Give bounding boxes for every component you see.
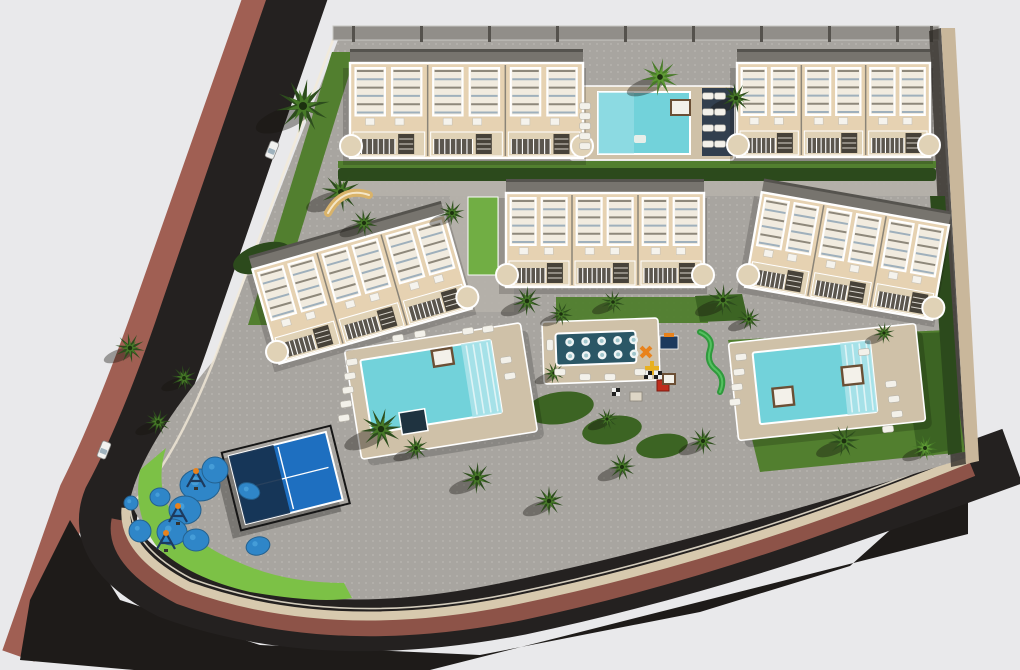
sun-lounger: [504, 372, 516, 380]
sun-lounger: [731, 383, 743, 391]
site-plan-render: [0, 0, 1020, 670]
palm-crown: [721, 298, 726, 303]
sun-lounger: [729, 398, 741, 406]
skylight: [443, 118, 452, 125]
palm-crown: [842, 439, 847, 444]
rooftop-pergola: [511, 198, 536, 245]
wall-post: [352, 26, 355, 42]
skylight: [879, 118, 888, 125]
skylight: [544, 248, 553, 255]
rooftop-pergola: [643, 198, 668, 245]
rooftop-pergola: [542, 198, 567, 245]
jet-pool: [555, 331, 636, 366]
building-block-b: [727, 49, 940, 164]
building-block-c: [496, 179, 714, 294]
skylight: [849, 264, 859, 272]
game-mat: [612, 392, 616, 396]
sun-lounger: [703, 93, 714, 100]
hot-tub: [399, 409, 428, 435]
skylight: [610, 248, 619, 255]
rooftop-pergola: [836, 68, 860, 115]
skylight: [585, 248, 594, 255]
skylight: [774, 118, 783, 125]
palm-crown: [156, 420, 160, 424]
aerial-render-canvas: [0, 0, 1020, 670]
wall-post: [624, 26, 627, 42]
skylight: [395, 118, 404, 125]
checker-chair: [658, 375, 662, 379]
skylight: [651, 248, 660, 255]
skylight: [888, 271, 898, 279]
palm-crown: [362, 221, 366, 225]
grass-patch: [468, 197, 498, 275]
palm-crown: [414, 446, 418, 450]
sun-lounger: [733, 368, 745, 376]
spa-table: [663, 374, 675, 384]
sun-lounger: [882, 425, 894, 433]
sun-lounger: [885, 380, 897, 388]
palm-crown: [701, 439, 705, 443]
rooftop-pergola: [900, 68, 924, 115]
curved-balcony: [727, 134, 749, 156]
pool-daybed: [671, 100, 690, 115]
palm-crown: [475, 476, 480, 481]
sun-lounger: [482, 325, 494, 333]
rooftop-pergola: [806, 68, 830, 115]
boundary-wall-top: [333, 26, 939, 42]
sun-lounger: [462, 327, 474, 335]
wall-post: [488, 26, 491, 42]
palm-crown: [657, 74, 663, 80]
wall-post: [420, 26, 423, 42]
skylight: [787, 253, 797, 261]
palm-crown: [547, 499, 552, 504]
curved-balcony: [496, 264, 518, 286]
wall-post: [760, 26, 763, 42]
play-pad: [150, 488, 170, 506]
sun-lounger: [715, 125, 726, 132]
sun-lounger: [715, 109, 726, 116]
sun-lounger: [605, 374, 616, 381]
palm-crown: [747, 317, 751, 321]
sun-lounger: [715, 93, 726, 100]
curved-balcony: [340, 135, 362, 157]
rooftop-pergola: [433, 68, 463, 116]
palm-crown: [299, 102, 307, 110]
checker-chair: [648, 371, 652, 375]
sun-lounger: [580, 374, 591, 381]
rooftop-pergola: [470, 68, 500, 116]
game-mat: [616, 392, 620, 396]
rooftop-pergola: [772, 68, 796, 115]
palm-crown: [923, 446, 927, 450]
play-house: [660, 336, 678, 349]
sun-lounger: [580, 113, 591, 120]
sun-lounger: [340, 400, 352, 408]
skylight: [750, 118, 759, 125]
skylight: [903, 118, 912, 125]
rooftop-pergola: [392, 68, 422, 116]
sun-lounger: [344, 372, 356, 380]
sun-lounger: [888, 395, 900, 403]
wall-post: [556, 26, 559, 42]
palm-crown: [620, 465, 624, 469]
sun-lounger: [715, 141, 726, 148]
palm-crown: [378, 426, 384, 432]
checker-chair: [654, 371, 658, 375]
curved-balcony: [918, 134, 940, 156]
daybed: [842, 365, 864, 385]
wall-post: [692, 26, 695, 42]
sun-lounger: [555, 369, 566, 376]
checker-chair: [654, 375, 658, 379]
sun-lounger: [635, 369, 646, 376]
sun-lounger: [580, 133, 591, 140]
game-mat: [616, 388, 620, 392]
skylight: [676, 248, 685, 255]
rooftop-pergola: [608, 198, 633, 245]
sun-lounger: [338, 414, 350, 422]
checker-chair: [648, 375, 652, 379]
sun-lounger: [392, 334, 404, 342]
palm-crown: [128, 346, 133, 351]
building-block-a: [340, 49, 593, 165]
sun-lounger: [414, 330, 426, 338]
game-mat: [612, 388, 616, 392]
palm-crown: [611, 300, 615, 304]
sun-lounger: [580, 103, 591, 110]
play-pad: [183, 529, 209, 551]
palm-crown: [559, 312, 563, 316]
sun-lounger: [580, 143, 591, 150]
sun-lounger: [500, 356, 512, 364]
daybed: [432, 348, 454, 367]
sun-lounger: [346, 358, 358, 366]
sun-lounger: [547, 340, 554, 351]
skylight: [550, 118, 559, 125]
sun-lounger: [858, 348, 870, 356]
checker-chair: [658, 371, 662, 375]
sun-lounger: [703, 125, 714, 132]
palm-crown: [882, 331, 885, 334]
wall-post: [896, 26, 899, 42]
rooftop-pergola: [355, 68, 385, 116]
rooftop-pergola: [870, 68, 894, 115]
daybed: [772, 387, 794, 407]
checker-chair: [644, 375, 648, 379]
sun-lounger: [703, 141, 714, 148]
rooftop-pergola: [547, 68, 577, 116]
palm-crown: [734, 96, 739, 101]
skylight: [763, 249, 773, 257]
east-pool-area: [728, 323, 932, 449]
sun-lounger: [891, 410, 903, 418]
picnic-table: [630, 392, 642, 401]
skylight: [814, 118, 823, 125]
skylight: [521, 118, 530, 125]
play-pad: [124, 496, 138, 510]
sun-lounger: [580, 123, 591, 130]
sun-lounger: [342, 386, 354, 394]
skylight: [826, 260, 836, 268]
sun-lounger: [703, 109, 714, 116]
palm-crown: [525, 299, 530, 304]
rooftop-pergola: [674, 198, 699, 245]
wall-post: [828, 26, 831, 42]
curved-balcony: [692, 264, 714, 286]
skylight: [519, 248, 528, 255]
sun-lounger: [735, 353, 747, 361]
play-pad: [129, 520, 151, 542]
skylight: [912, 275, 922, 283]
skylight: [839, 118, 848, 125]
skylight: [366, 118, 375, 125]
play-pad: [202, 457, 228, 483]
pool-float: [634, 135, 646, 143]
skylight: [473, 118, 482, 125]
palm-crown: [605, 417, 608, 420]
palm-crown: [450, 211, 454, 215]
rooftop-pergola: [742, 68, 766, 115]
rooftop-pergola: [511, 68, 541, 116]
rooftop-pergola: [577, 198, 602, 245]
palm-crown: [182, 376, 186, 380]
